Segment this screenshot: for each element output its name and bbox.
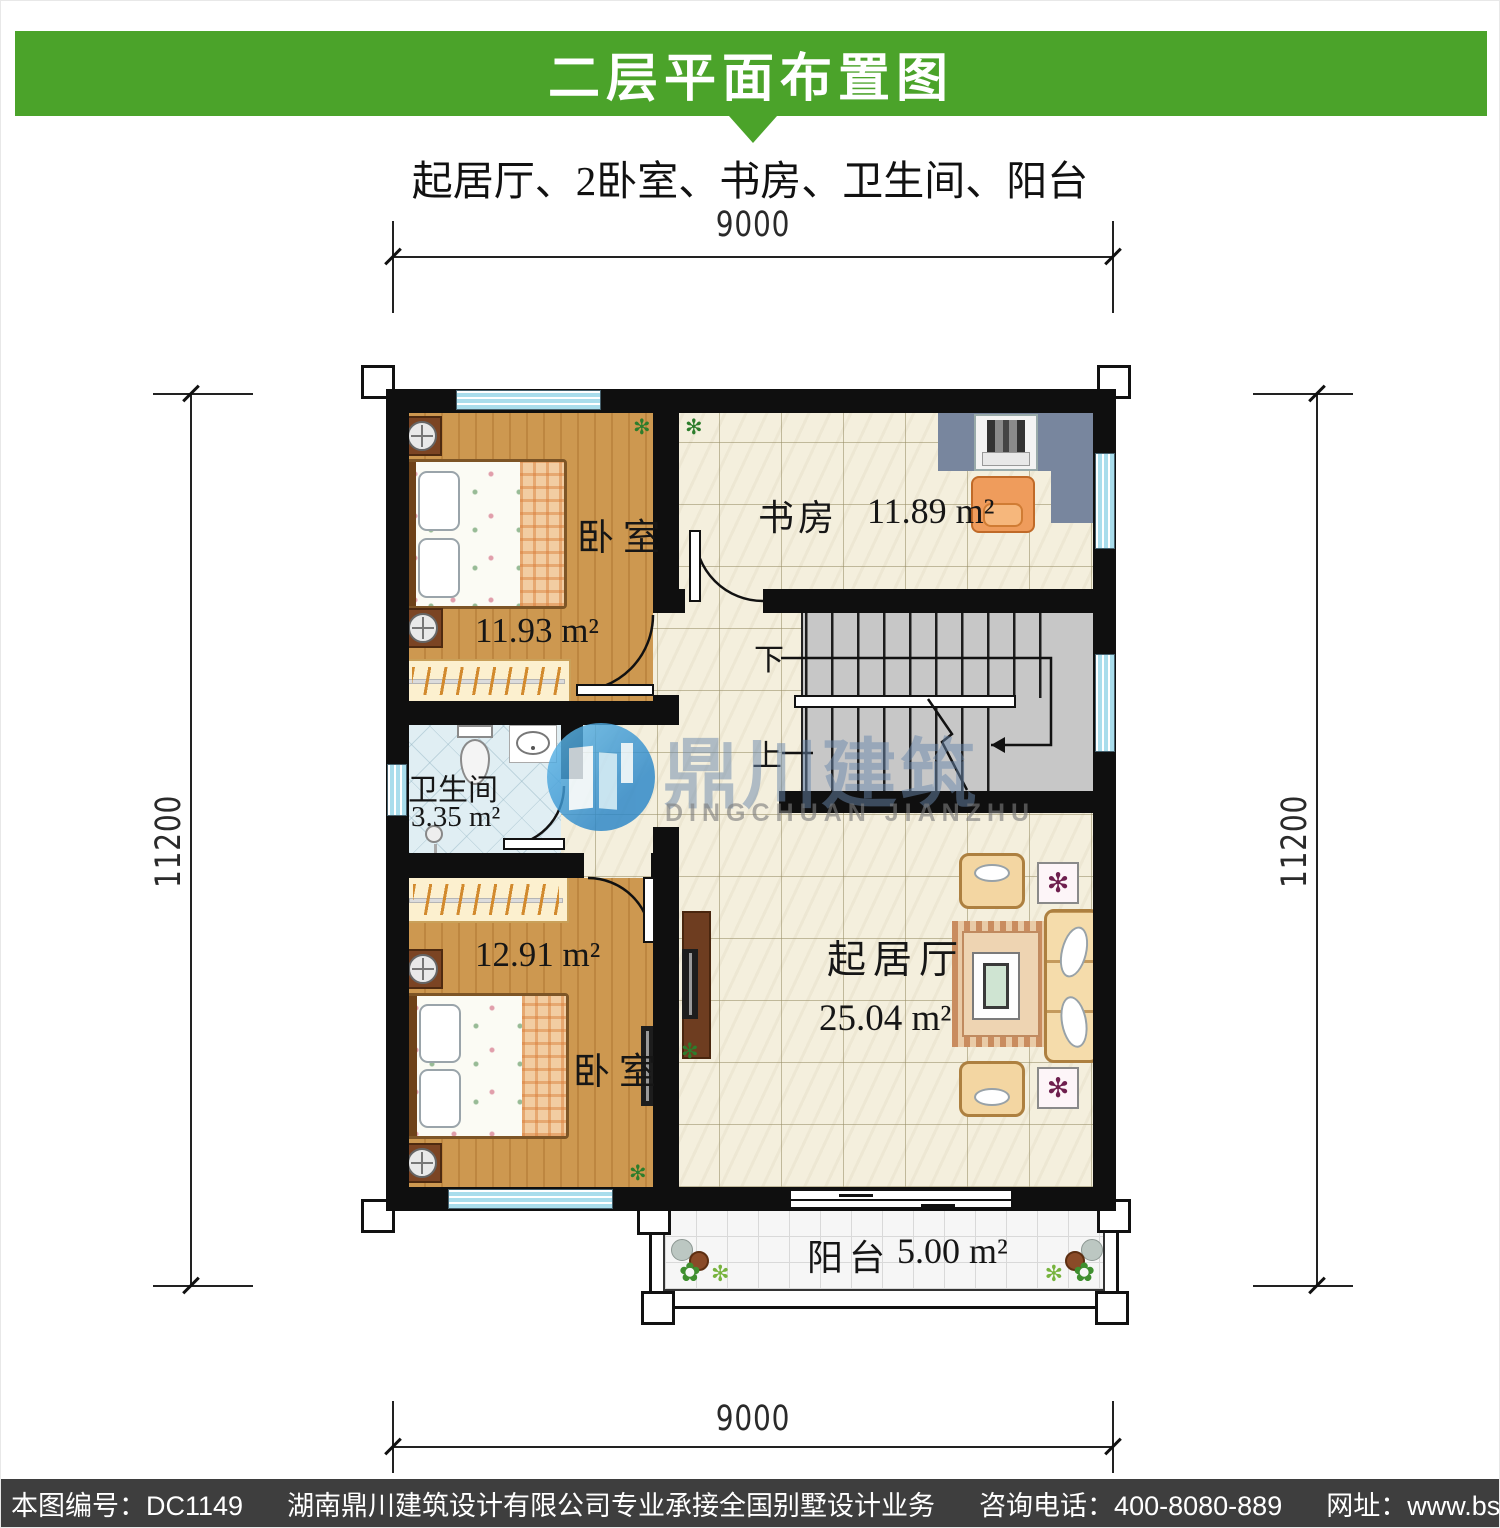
wall-bedroom-living <box>653 827 679 1187</box>
dim-left-ext-bottom <box>153 1285 253 1287</box>
dim-left-ext-top <box>153 393 253 395</box>
dim-left-label: 11200 <box>149 800 189 888</box>
footer-drawing-no: 本图编号：DC1149 <box>11 1484 243 1523</box>
plant-icon: ✻ <box>685 417 703 438</box>
flower-icon: ✻ <box>1047 868 1070 899</box>
page-title: 二层平面布置图 <box>15 31 1487 116</box>
label-study: 书房 <box>758 489 838 541</box>
wall-bathroom-top <box>386 701 653 725</box>
dim-right-line <box>1316 394 1318 1287</box>
page-subtitle: 起居厅、2卧室、书房、卫生间、阳台 <box>1 147 1499 207</box>
area-bedroom-bottom: 12.91 m² <box>475 935 600 975</box>
area-balcony: 5.00 m² <box>897 1230 1008 1272</box>
watermark-logo-icon <box>547 723 655 831</box>
plant-icon: ✿ <box>1073 1259 1095 1285</box>
pillow <box>418 538 460 598</box>
header-banner: 二层平面布置图 <box>15 31 1487 116</box>
dim-bottom-line <box>392 1446 1114 1448</box>
blanket <box>522 996 566 1136</box>
dim-bottom-ext-right <box>1112 1401 1114 1473</box>
pillow <box>418 471 460 531</box>
balcony-sliding-door <box>791 1189 1011 1209</box>
dim-right-ext-top <box>1253 393 1353 395</box>
computer-icon <box>987 420 1025 454</box>
corner-column <box>641 1291 675 1325</box>
window-bedroom-bottom <box>448 1189 613 1209</box>
plant-icon: ✻ <box>711 1263 729 1285</box>
footer-phone: 咨询电话：400-8080-889 <box>979 1484 1282 1523</box>
watermark-name-en: DINGCHUAN JIANZHU <box>665 799 1035 828</box>
bed-bottom <box>403 993 569 1139</box>
wardrobe <box>402 659 571 703</box>
plant-icon: ✻ <box>633 417 651 438</box>
dim-bottom-ext-left <box>392 1401 394 1473</box>
stair-down-label: 下 <box>754 635 784 679</box>
window-study <box>1095 453 1115 549</box>
keyboard <box>982 452 1030 466</box>
label-bedroom-top: 卧室 <box>577 507 669 561</box>
banner-pointer <box>729 116 777 143</box>
pillow <box>419 1069 461 1128</box>
balcony-plant-left: ✿ ✻ <box>669 1237 761 1291</box>
logo-building <box>621 743 633 783</box>
dim-right-ext-bottom <box>1253 1285 1353 1287</box>
dim-left-line <box>190 394 192 1287</box>
window-stairwell <box>1095 654 1115 752</box>
flower-icon: ✻ <box>1047 1073 1070 1104</box>
sofa <box>1044 909 1100 1063</box>
window-bedroom-top <box>456 390 601 410</box>
sofa-pillow <box>1057 994 1092 1050</box>
label-bedroom-bottom: 卧室 <box>573 1041 665 1095</box>
area-living-room: 25.04 m² <box>819 997 951 1040</box>
plant-icon: ✻ <box>681 1041 699 1062</box>
footer-bar: 本图编号：DC1149 湖南鼎川建筑设计有限公司专业承接全国别墅设计业务 咨询电… <box>1 1479 1499 1527</box>
dim-right-label: 11200 <box>1275 800 1315 888</box>
pillow <box>419 1004 461 1063</box>
study-desk-mat <box>1051 471 1096 523</box>
balcony-plant-right: ✿ ✻ <box>1013 1237 1105 1291</box>
logo-building <box>599 752 617 810</box>
dim-bottom-label: 9000 <box>464 1399 1042 1439</box>
wardrobe <box>403 876 569 923</box>
dim-top-ext-right <box>1112 221 1114 313</box>
footer-website: 网址：www.bstzcs.com <box>1326 1484 1500 1523</box>
toilet-tank <box>457 725 493 738</box>
stair-treads-upper <box>805 613 1045 698</box>
coffee-table <box>972 952 1020 1020</box>
footer-company: 湖南鼎川建筑设计有限公司专业承接全国别墅设计业务 <box>287 1484 935 1523</box>
lamp-icon <box>407 1148 437 1178</box>
area-bedroom-top: 11.93 m² <box>475 611 599 651</box>
dim-top-ext-left <box>392 221 394 313</box>
wall-study-stub <box>653 589 685 613</box>
lamp-icon <box>407 421 437 451</box>
blanket <box>520 462 564 606</box>
sofa-pillow <box>1055 924 1093 981</box>
plant-stand: ✻ <box>1037 1067 1079 1109</box>
area-bathroom: 3.35 m² <box>411 801 500 834</box>
desk <box>974 414 1038 471</box>
door-track <box>791 1199 1011 1201</box>
door-handle <box>839 1194 873 1197</box>
wall-study-bottom <box>763 589 1093 613</box>
plant-icon: ✻ <box>1045 1263 1063 1285</box>
wall-bathroom-bottom <box>386 853 584 878</box>
plant-icon: ✿ <box>679 1259 701 1285</box>
tv <box>682 949 698 1019</box>
lamp-icon <box>408 613 438 643</box>
floor-plan-page: 二层平面布置图 起居厅、2卧室、书房、卫生间、阳台 9000 9000 1120… <box>0 0 1500 1528</box>
plant-icon: ✻ <box>629 1163 647 1184</box>
label-living-room: 起居厅 <box>827 929 965 985</box>
wall-bathroom-bottom <box>651 853 679 878</box>
dim-top-label: 9000 <box>464 205 1042 245</box>
plant-stand: ✻ <box>1037 862 1079 904</box>
logo-building <box>569 746 593 811</box>
armchair <box>959 853 1025 909</box>
window-bathroom <box>387 764 407 816</box>
door-handle <box>921 1204 955 1207</box>
area-study: 11.89 m² <box>867 490 994 532</box>
dim-top-line <box>392 256 1114 258</box>
armchair <box>959 1061 1025 1117</box>
corner-column <box>1095 1291 1129 1325</box>
lamp-icon <box>408 954 438 984</box>
label-balcony: 阳台 <box>807 1229 891 1281</box>
bed-top <box>402 459 567 609</box>
